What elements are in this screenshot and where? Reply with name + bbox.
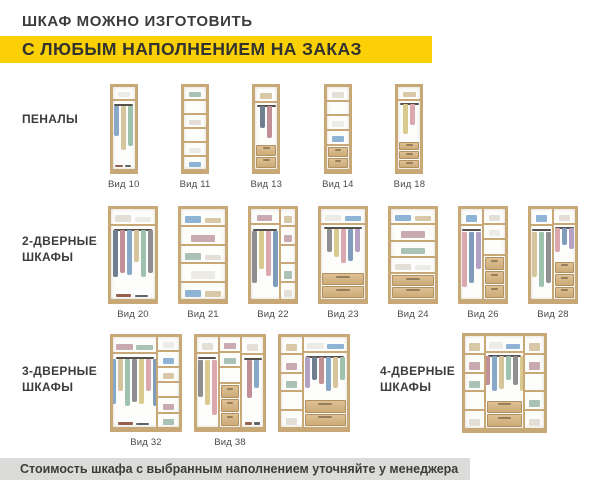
shelf-cell (251, 209, 279, 225)
cabinet-column (523, 336, 544, 428)
shelf-item (189, 92, 201, 97)
shelf-cell (281, 392, 302, 410)
shelf-item (403, 92, 415, 97)
cabinet-label: Вид 21 (187, 309, 219, 320)
garment (326, 357, 331, 391)
drawer-stack (398, 141, 420, 169)
shelf-cell (525, 392, 544, 411)
garment (340, 357, 345, 380)
hanging-section (113, 354, 156, 413)
garment (462, 232, 467, 287)
shelf-item (536, 215, 548, 221)
drawer (399, 142, 419, 150)
cabinet-label: Вид 10 (108, 179, 140, 190)
shelf-cell (181, 227, 225, 245)
drawer-handle (263, 147, 270, 149)
shelf-cell (391, 242, 435, 258)
shelf-item (189, 120, 201, 125)
shelf-item (469, 419, 480, 426)
shelf-item (489, 230, 501, 236)
shelf-item (466, 215, 478, 221)
shelf-cell (158, 414, 179, 427)
shelf-item (205, 255, 222, 261)
shelf-item (401, 248, 426, 254)
drawer (322, 286, 364, 298)
shelf-item (469, 362, 480, 369)
garment (132, 359, 137, 402)
drawer (328, 147, 348, 157)
garment (153, 359, 156, 406)
shelf-item (189, 148, 201, 153)
garments-group (253, 231, 277, 296)
drawer-handle (406, 144, 413, 146)
garment (134, 230, 139, 262)
drawer-handle (263, 159, 270, 161)
garments-group (199, 360, 216, 424)
shelf-cell (158, 368, 179, 383)
cabinet-box (395, 84, 423, 174)
cabinet-column (552, 209, 575, 299)
drawer-stack (554, 261, 575, 299)
shelf-cell (255, 87, 277, 103)
page-title: ШКАФ МОЖНО ИЗГОТОВИТЬ (22, 13, 253, 30)
cabinet-box (528, 206, 578, 304)
hanging-section (304, 353, 347, 399)
shelf-cell (197, 337, 218, 354)
drawer (256, 145, 276, 156)
shelf-item (163, 419, 175, 425)
shelf-cell (184, 115, 206, 129)
shelf-cell (525, 411, 544, 428)
floor-item (245, 422, 252, 425)
garment (254, 360, 259, 388)
open-section (113, 157, 135, 169)
cabinet-column (482, 209, 505, 299)
shelf-item (136, 345, 152, 350)
drawer (305, 414, 346, 426)
shelf-item (191, 271, 216, 278)
shelf-item (559, 215, 571, 221)
shelf-cell (465, 336, 484, 355)
garment (273, 231, 278, 287)
shelf-cell (281, 227, 295, 245)
garment (319, 357, 324, 384)
shelf-cell (531, 209, 552, 226)
cabinet-box (318, 206, 368, 304)
cabinet-column (240, 337, 263, 427)
open-section (111, 284, 155, 299)
cabinet-label: Вид 18 (394, 179, 426, 190)
cabinet-label: Вид 20 (117, 309, 149, 320)
cabinet-column (279, 209, 295, 299)
shelf-cell (525, 336, 544, 355)
shelf-cell (484, 209, 505, 225)
shelf-cell (111, 209, 155, 226)
cabinet-box (388, 206, 438, 304)
floor-item (136, 423, 149, 425)
floor-item (115, 165, 122, 167)
shelf-cell (113, 337, 156, 354)
section-label-2door: 2-ДВЕРНЫЕ ШКАФЫ (22, 234, 112, 265)
garment (327, 229, 332, 252)
drawer-handle (335, 160, 342, 162)
cabinet-label: Вид 14 (322, 179, 354, 190)
section-label-4door: 4-ДВЕРНЫЕ ШКАФЫ (380, 364, 470, 395)
cabinet-vid-24: Вид 24 (388, 206, 438, 320)
drawer-handle (561, 277, 567, 279)
cabinet-label: Вид 11 (180, 179, 211, 190)
shelf-cell (304, 337, 347, 353)
shelf-cell (281, 337, 302, 355)
cabinet-column (327, 87, 349, 169)
garment (139, 359, 144, 404)
garment (334, 229, 339, 257)
cabinet-box (324, 84, 352, 174)
shelf-item (185, 253, 202, 260)
shelf-item (224, 358, 236, 364)
cabinet-vid-14: Вид 14 (322, 84, 354, 190)
cabinet-vid-18: Вид 18 (394, 84, 426, 190)
shelf-cell (158, 352, 179, 367)
shelf-item (286, 418, 298, 425)
cabinet-label: Вид 24 (397, 309, 429, 320)
cabinet-box (178, 206, 228, 304)
cabinet-label: Вид 28 (537, 309, 569, 320)
cabinet-column (111, 209, 155, 299)
garment (506, 356, 511, 379)
drawer-stack (391, 274, 435, 299)
cabinet-box (110, 334, 182, 432)
hanging-section (251, 225, 279, 299)
shelf-item (284, 290, 292, 297)
cabinet-column (302, 337, 347, 427)
cabinet-column (321, 209, 365, 299)
shelf-cell (158, 398, 179, 413)
shelf-item (529, 419, 540, 426)
drawer-handle (406, 289, 420, 291)
cabinet-vid-26: Вид 26 (458, 206, 508, 320)
shelf-item (506, 344, 520, 349)
drawer-handle (318, 416, 332, 418)
shelf-cell (525, 374, 544, 393)
garment (348, 229, 353, 261)
garments-group (113, 230, 153, 281)
shelf-item (189, 162, 201, 167)
cabinet-column (197, 337, 218, 427)
shelf-cell (281, 264, 295, 282)
drawer-handle (336, 276, 350, 278)
drawer-stack (327, 146, 349, 169)
garment (476, 232, 481, 269)
garment (555, 228, 560, 252)
drawer (487, 401, 523, 414)
shelf-item (345, 216, 362, 221)
hanging-section (554, 225, 575, 261)
garment (469, 232, 474, 284)
cabinet-row-2door: Вид 20Вид 21Вид 22Вид 23Вид 24Вид 26Вид … (108, 206, 578, 320)
shelf-item (395, 215, 412, 221)
shelf-item (185, 216, 202, 223)
shelf-cell (113, 87, 135, 101)
garment (492, 356, 497, 391)
shelf-cell (465, 374, 484, 393)
garment (305, 357, 310, 388)
hanging-section (461, 226, 482, 299)
shelf-item (224, 343, 236, 349)
shelf-cell (220, 368, 241, 384)
shelf-item (163, 342, 175, 348)
garment (121, 106, 126, 150)
garment (128, 106, 133, 147)
drawer (392, 275, 434, 286)
drawer (392, 287, 434, 298)
garment (212, 360, 217, 415)
cabinet-vid-32: Вид 32 (110, 334, 182, 448)
garment (486, 356, 490, 384)
cabinet-row-4door (462, 333, 547, 449)
shelf-cell (327, 87, 349, 102)
garments-group (323, 229, 363, 269)
cabinet-label: Вид 32 (130, 437, 162, 448)
shelf-item (489, 342, 503, 348)
hanging-section (255, 103, 277, 144)
cabinet-box (458, 206, 508, 304)
shelf-cell (554, 209, 575, 225)
shelf-item (205, 218, 222, 224)
cabinet-vid-11: Вид 11 (180, 84, 211, 190)
open-section (242, 411, 263, 427)
hanging-section (111, 226, 155, 285)
shelf-item (415, 216, 432, 221)
cabinet-column (218, 337, 241, 427)
garment (341, 229, 346, 264)
garment (127, 230, 132, 275)
shelf-item (247, 344, 259, 351)
cabinet-unlabeled (278, 334, 350, 448)
drawer-handle (498, 403, 510, 405)
cabinet-vid-23: Вид 23 (318, 206, 368, 320)
cabinet-vid-20: Вид 20 (108, 206, 158, 320)
shelf-item (284, 216, 292, 223)
shelf-item (260, 93, 272, 99)
garment (562, 228, 567, 246)
cabinet-label: Вид 22 (257, 309, 289, 320)
garment (205, 360, 210, 405)
hanging-section (242, 355, 263, 410)
garment (114, 106, 119, 136)
shelf-item (395, 264, 412, 270)
shelf-cell (465, 392, 484, 411)
drawer-handle (336, 289, 350, 291)
cabinet-row-3door: Вид 32Вид 38 (110, 334, 350, 448)
drawer (399, 160, 419, 168)
garment (113, 359, 116, 404)
drawer-handle (561, 289, 567, 291)
drawer-stack (321, 272, 365, 299)
cabinet-label: Вид 38 (214, 437, 246, 448)
shelf-item (469, 381, 480, 388)
garments-group (244, 360, 261, 408)
shelf-cell (327, 102, 349, 117)
shelf-cell (158, 383, 179, 398)
catalog-page: ШКАФ МОЖНО ИЗГОТОВИТЬ С ЛЮБЫМ НАПОЛНЕНИЕ… (0, 0, 600, 500)
drawer-handle (491, 260, 497, 262)
garment (499, 356, 504, 388)
drawer (555, 274, 574, 285)
garment (266, 231, 271, 277)
drawer (328, 158, 348, 168)
shelf-item (415, 265, 432, 270)
garments-group (400, 104, 418, 138)
cabinet-box (462, 333, 547, 433)
drawer-handle (227, 388, 233, 390)
shelf-item (118, 92, 130, 97)
shelf-item (469, 343, 480, 350)
shelf-cell (391, 225, 435, 241)
hanging-section (486, 353, 524, 400)
cabinet-label: Вид 23 (327, 309, 359, 320)
drawer-handle (406, 162, 413, 164)
drawer (305, 400, 346, 412)
cabinet-box (181, 84, 209, 174)
drawer (256, 157, 276, 168)
drawer-stack (484, 256, 505, 299)
shelf-item (163, 358, 175, 364)
cabinet-column (531, 209, 552, 299)
garment (312, 357, 317, 380)
drawer-handle (335, 149, 342, 151)
shelf-cell (181, 209, 225, 227)
shelf-cell (465, 411, 484, 428)
open-section (113, 413, 156, 427)
cabinet-label: Вид 26 (467, 309, 499, 320)
shelf-cell (184, 157, 206, 169)
shelf-item (286, 344, 298, 351)
drawer (485, 257, 504, 270)
shelf-cell (486, 336, 524, 353)
cabinet-column (398, 87, 420, 169)
shelf-cell (281, 355, 302, 373)
shelf-item (115, 215, 132, 221)
section-label-penaly: ПЕНАЛЫ (22, 112, 112, 128)
cabinet-vid-10: Вид 10 (108, 84, 140, 190)
shelf-item (163, 404, 175, 410)
shelf-cell (184, 101, 206, 115)
garment (247, 360, 252, 398)
cabinet-column (251, 209, 279, 299)
floor-item (135, 295, 148, 297)
cabinet-column (484, 336, 524, 428)
shelf-cell (158, 337, 179, 352)
shelf-cell (281, 374, 302, 392)
shelf-item (191, 235, 216, 242)
drawer (555, 287, 574, 298)
garments-group (115, 106, 133, 154)
shelf-item (205, 291, 222, 297)
cabinet-box (108, 206, 158, 304)
garment (333, 357, 338, 388)
cabinet-column (156, 337, 179, 427)
hanging-section (197, 354, 218, 427)
shelf-cell (281, 283, 295, 299)
shelf-item (401, 231, 426, 237)
cabinet-vid-38: Вид 38 (194, 334, 266, 448)
shelf-item (284, 271, 292, 278)
cabinet-column (465, 336, 484, 428)
hanging-section (398, 101, 420, 141)
cabinet-column (281, 337, 302, 427)
shelf-cell (220, 337, 241, 353)
cabinet-vid-28: Вид 28 (528, 206, 578, 320)
cabinet-box (110, 84, 138, 174)
shelf-cell (281, 209, 295, 227)
drawer (221, 399, 240, 412)
shelf-cell (220, 353, 241, 369)
floor-item (125, 165, 132, 167)
drawer (485, 285, 504, 298)
shelf-cell (184, 143, 206, 157)
garment (198, 360, 203, 397)
cabinet-column (113, 337, 156, 427)
drawer (322, 273, 364, 285)
hanging-section (531, 226, 552, 299)
shelf-cell (184, 87, 206, 101)
shelf-item (325, 215, 342, 221)
garment (118, 359, 123, 391)
cabinet-vid-22: Вид 22 (248, 206, 298, 320)
shelf-cell (461, 209, 482, 226)
drawer-handle (406, 153, 413, 155)
shelf-cell (525, 355, 544, 374)
drawer-handle (406, 278, 420, 280)
cabinet-box (194, 334, 266, 432)
drawer (399, 151, 419, 159)
drawer-stack (304, 399, 347, 427)
cabinet-row-penaly: Вид 10Вид 11Вид 13Вид 14Вид 18 (108, 84, 425, 190)
cabinet-column (113, 87, 135, 169)
garment (113, 230, 118, 277)
shelf-cell (281, 246, 295, 264)
accent-banner: С ЛЮБЫМ НАПОЛНЕНИЕМ НА ЗАКАЗ (0, 36, 432, 63)
shelf-cell (391, 258, 435, 274)
drawer (555, 262, 574, 273)
shelf-cell (398, 87, 420, 101)
garment (259, 231, 264, 269)
shelf-cell (321, 209, 365, 225)
garment (546, 232, 551, 284)
drawer (485, 271, 504, 284)
garment (125, 359, 130, 406)
shelf-item (163, 373, 175, 379)
garment (120, 230, 125, 273)
shelf-item (529, 362, 540, 369)
shelf-item (332, 121, 344, 127)
shelf-item (307, 343, 323, 349)
garment (513, 356, 518, 384)
shelf-cell (484, 225, 505, 241)
garments-group (463, 232, 480, 296)
floor-item (254, 422, 260, 425)
floor-item (116, 294, 131, 297)
drawer-handle (318, 403, 332, 405)
shelf-cell (181, 264, 225, 282)
drawer-handle (227, 402, 233, 404)
shelf-item (284, 235, 292, 242)
garment (252, 231, 257, 283)
shelf-item (327, 344, 343, 349)
cabinet-box (252, 84, 280, 174)
drawer-stack (220, 384, 241, 427)
